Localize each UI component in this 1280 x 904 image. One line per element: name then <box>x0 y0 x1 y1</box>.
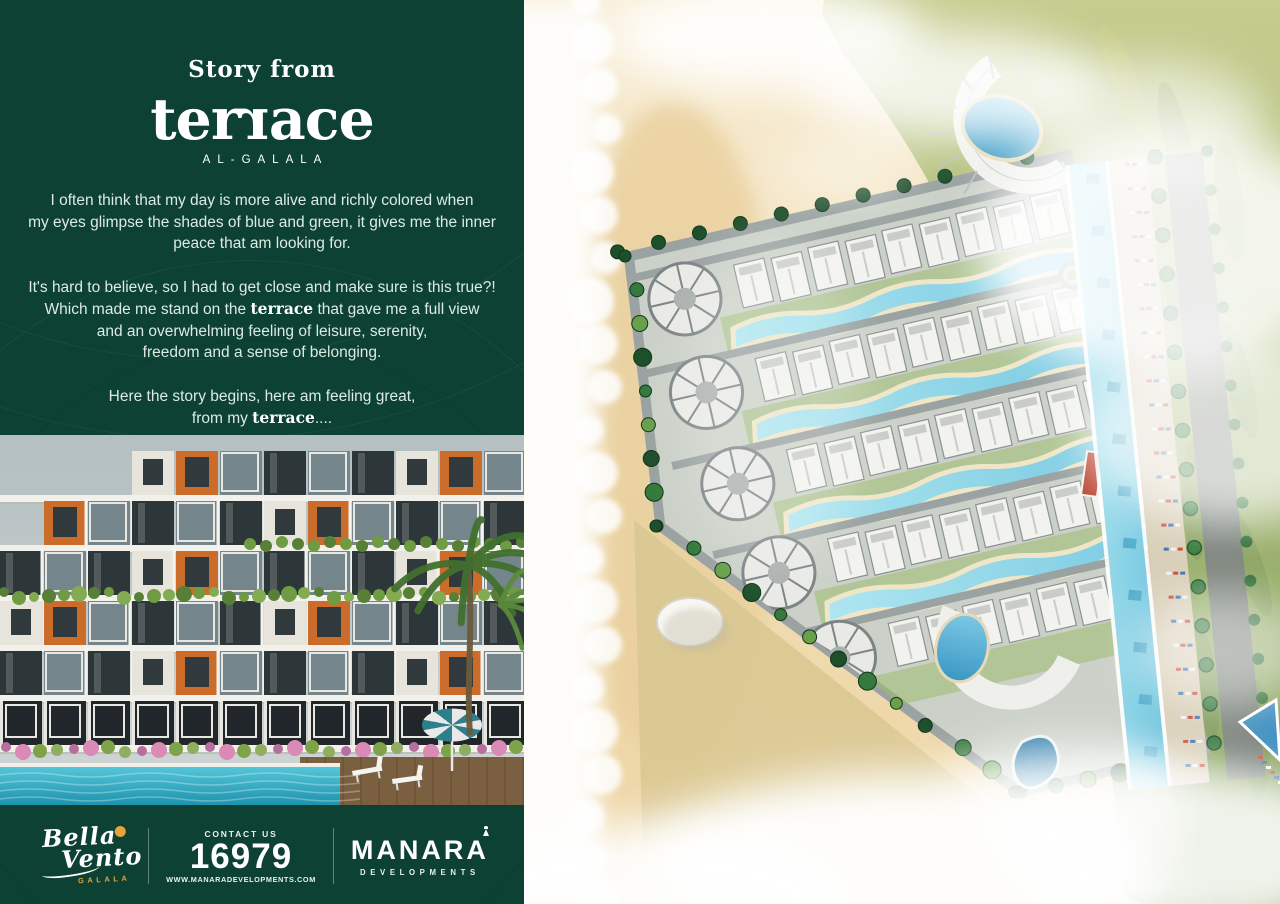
footer-logos: Bella Vento GALALA CONTACT US 16979 WWW.… <box>0 816 524 896</box>
story-paragraph-3: Here the story begins, here am feeling g… <box>19 386 505 430</box>
mirrored-r-glyph: r <box>240 93 269 147</box>
footer-divider <box>148 828 149 884</box>
sun-dot-icon <box>115 826 127 838</box>
bella-vento-logo: Bella Vento GALALA <box>33 818 133 895</box>
masterplan-panel <box>524 0 1280 904</box>
manara-developments-logo: MANARA DEVELOPMENTS <box>351 835 489 877</box>
algalala-subtitle: AL-GALALA <box>0 154 524 166</box>
lighthouse-icon <box>480 826 490 836</box>
building-render-photo <box>0 435 524 805</box>
building-render-illustration <box>0 435 524 805</box>
terrace-logo: terrace <box>0 93 524 147</box>
story-paragraph-1: I often think that my day is more alive … <box>19 190 505 255</box>
story-body: I often think that my day is more alive … <box>0 190 524 430</box>
hotline-number: 16979 <box>166 839 316 874</box>
website-url: WWW.MANARADEVELOPMENTS.COM <box>166 875 316 884</box>
contact-block: CONTACT US 16979 WWW.MANARADEVELOPMENTS.… <box>166 829 316 884</box>
footer-divider <box>333 828 334 884</box>
story-header: Story from terrace AL-GALALA <box>0 0 524 166</box>
brochure-page: Story from terrace AL-GALALA I often thi… <box>0 0 1280 904</box>
terrace-wordmark-inline: terrace <box>250 299 313 318</box>
eyebrow-title: Story from <box>0 56 524 83</box>
story-panel: Story from terrace AL-GALALA I often thi… <box>0 0 524 904</box>
masterplan-illustration <box>524 0 1280 904</box>
story-paragraph-2: It's hard to believe, so I had to get cl… <box>19 277 505 364</box>
terrace-wordmark-inline: terrace <box>252 408 315 427</box>
